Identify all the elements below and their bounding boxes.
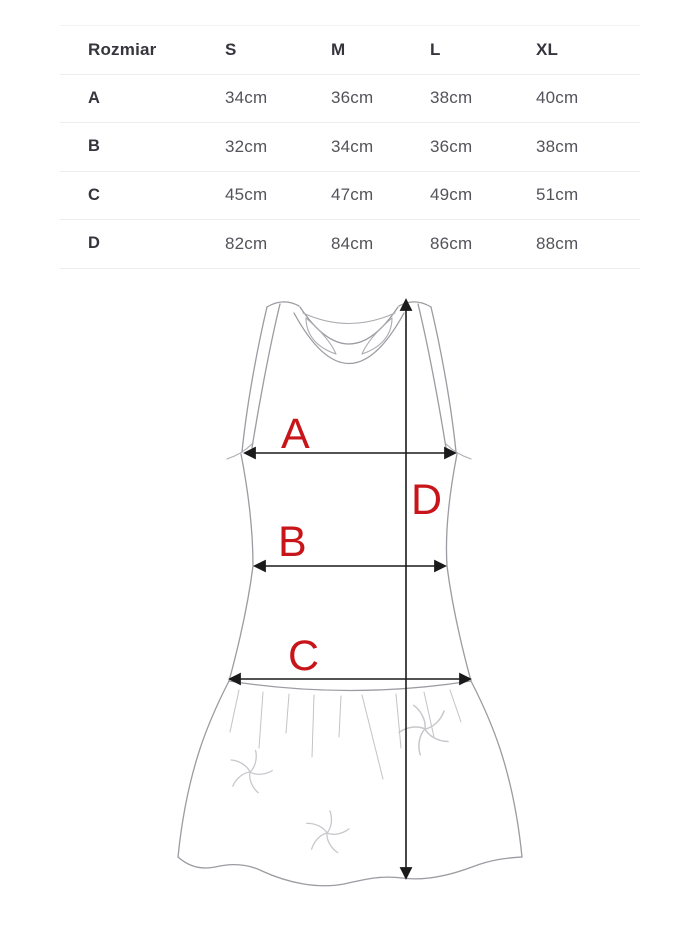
- measurement-label-a: A: [281, 410, 310, 458]
- swirl-motif: [224, 747, 278, 800]
- measurement-label-d: D: [411, 476, 442, 524]
- skirt-pleats: [230, 690, 461, 779]
- measurement-label-c: C: [288, 632, 319, 680]
- measurement-lines: [230, 300, 470, 878]
- size-chart-page: Rozmiar S M L XL A 34cm 36cm 38cm 40cm B…: [0, 0, 700, 933]
- dress-diagram: A B C D: [0, 0, 700, 933]
- measurement-label-b: B: [278, 518, 307, 566]
- dress-outline: [178, 302, 522, 886]
- swirl-motif: [395, 703, 454, 760]
- swirl-motif: [296, 805, 355, 864]
